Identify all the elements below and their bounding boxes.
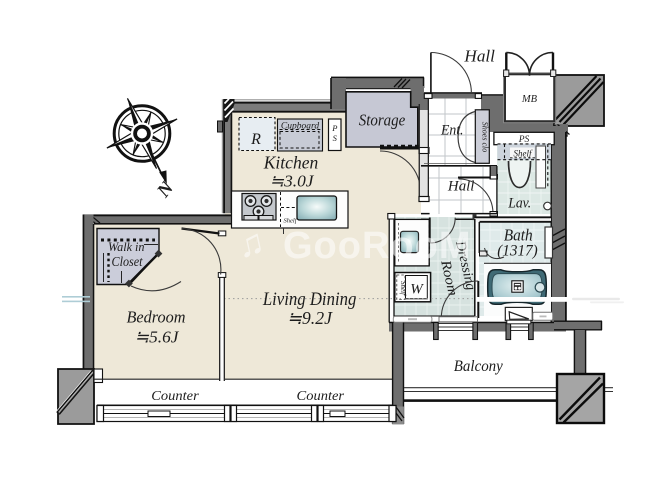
svg-text:≒9.2J: ≒9.2J (287, 308, 333, 328)
svg-text:Kitchen: Kitchen (263, 153, 319, 173)
svg-text:Counter: Counter (297, 388, 345, 403)
svg-text:Closet: Closet (112, 254, 144, 269)
svg-text:Shoes clo: Shoes clo (481, 122, 490, 152)
svg-text:Storage: Storage (359, 110, 406, 129)
svg-text:S: S (333, 133, 338, 143)
svg-text:Shelf: Shelf (514, 149, 533, 159)
svg-text:Walk in: Walk in (108, 239, 145, 254)
svg-text:Cupboard: Cupboard (281, 122, 319, 132)
svg-text:≒5.6J: ≒5.6J (135, 327, 180, 346)
svg-text:MB: MB (521, 94, 538, 105)
svg-text:Hall: Hall (463, 47, 495, 66)
svg-text:Counter: Counter (151, 388, 199, 403)
svg-text:P: P (331, 123, 337, 133)
svg-text:Shelf: Shelf (284, 218, 298, 225)
svg-text:R: R (250, 131, 261, 148)
svg-text:Balcony: Balcony (454, 358, 504, 375)
svg-text:W: W (410, 282, 424, 298)
svg-text:≒3.0J: ≒3.0J (270, 172, 315, 191)
svg-text:GooRooM: GooRooM (283, 225, 472, 267)
svg-text:Lav.: Lav. (507, 196, 531, 212)
svg-text:Bedroom: Bedroom (127, 308, 186, 327)
svg-text:Shelf: Shelf (399, 281, 407, 296)
